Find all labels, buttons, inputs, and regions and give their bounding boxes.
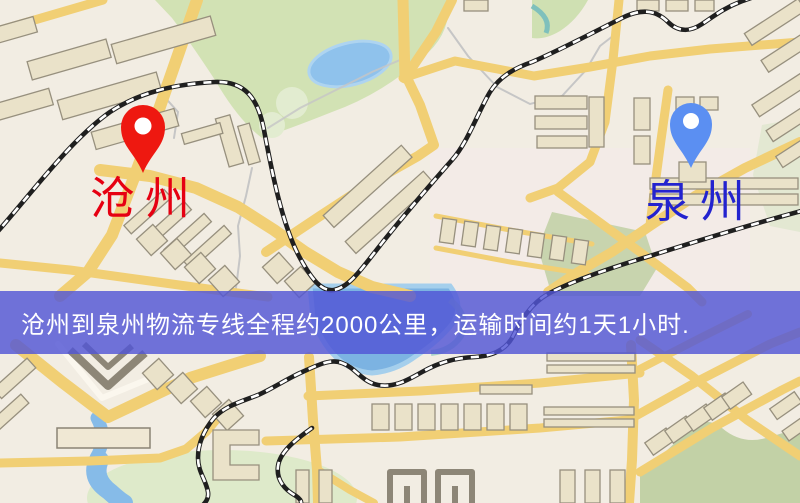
red-pin-hole (135, 118, 152, 135)
blue-pin-hole (683, 113, 699, 129)
logistics-route-map: 沧州 泉州 沧州到泉州物流专线全程约2000公里，运输时间约1天1小时. (0, 0, 800, 503)
map-canvas (0, 0, 800, 503)
route-banner-text: 沧州到泉州物流专线全程约2000公里，运输时间约1天1小时. (0, 305, 690, 340)
route-banner: 沧州到泉州物流专线全程约2000公里，运输时间约1天1小时. (0, 291, 800, 354)
